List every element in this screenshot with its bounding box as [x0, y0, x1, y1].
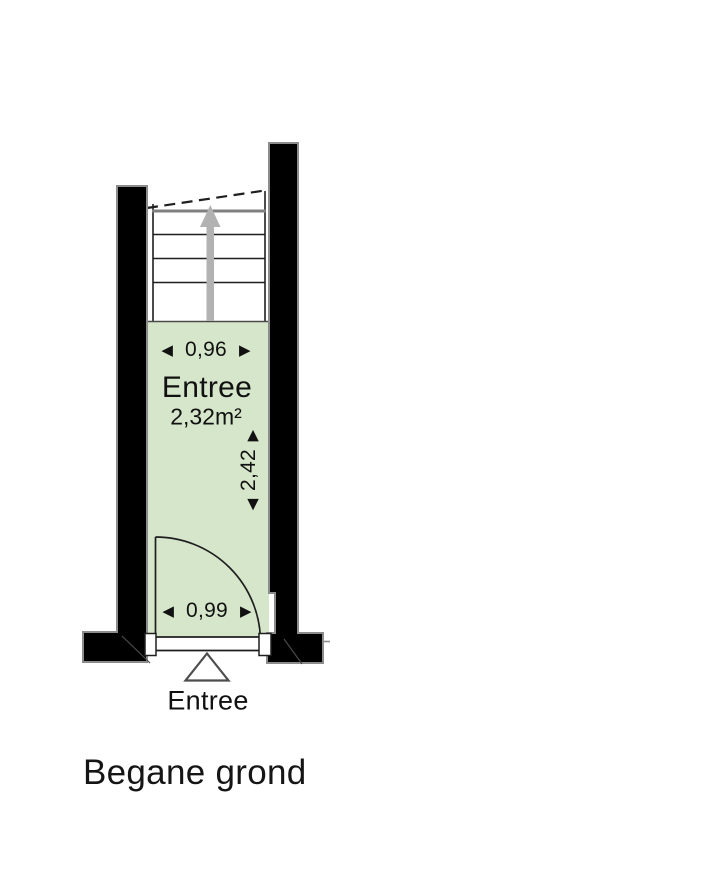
- room-name-label: Entree: [162, 371, 252, 405]
- dim-arrow-down-icon: ▼: [247, 497, 259, 512]
- entrance-label: Entree: [167, 686, 248, 717]
- room-area-label: 2,32m²: [170, 404, 242, 431]
- stairs-arrow-head: [200, 205, 221, 227]
- dim-arrow-left-icon: ◀: [161, 343, 173, 358]
- door-jamb-left: [145, 634, 156, 656]
- wall-right: [267, 143, 323, 663]
- dim-width-bottom-value: 0,99: [186, 599, 228, 623]
- floor-title: Begane grond: [83, 753, 307, 793]
- door-jamb-right: [259, 634, 271, 656]
- dim-height-value: 2,42: [237, 449, 261, 491]
- dim-arrow-up-icon: ▲: [247, 428, 259, 443]
- wall-left: [83, 186, 147, 662]
- dim-width-top: ◀ 0,96 ▶: [161, 338, 250, 362]
- stair-cut-dashed-line: [147, 190, 268, 208]
- dim-width-top-value: 0,96: [185, 338, 227, 362]
- dim-arrow-right-icon: ▶: [240, 604, 252, 619]
- entrance-marker-triangle: [186, 654, 229, 681]
- floor-plan-drawing: [0, 0, 720, 882]
- floor-plan-canvas: ◀ 0,96 ▶ Entree 2,32m² ▲ 2,42 ▼ ◀ 0,99 ▶…: [0, 0, 720, 882]
- stairs-arrow-shaft: [207, 225, 215, 321]
- dim-arrow-left-icon: ◀: [162, 604, 174, 619]
- dim-arrow-right-icon: ▶: [239, 343, 251, 358]
- stairs-direction-arrow: [200, 205, 221, 321]
- dim-width-bottom: ◀ 0,99 ▶: [162, 599, 251, 623]
